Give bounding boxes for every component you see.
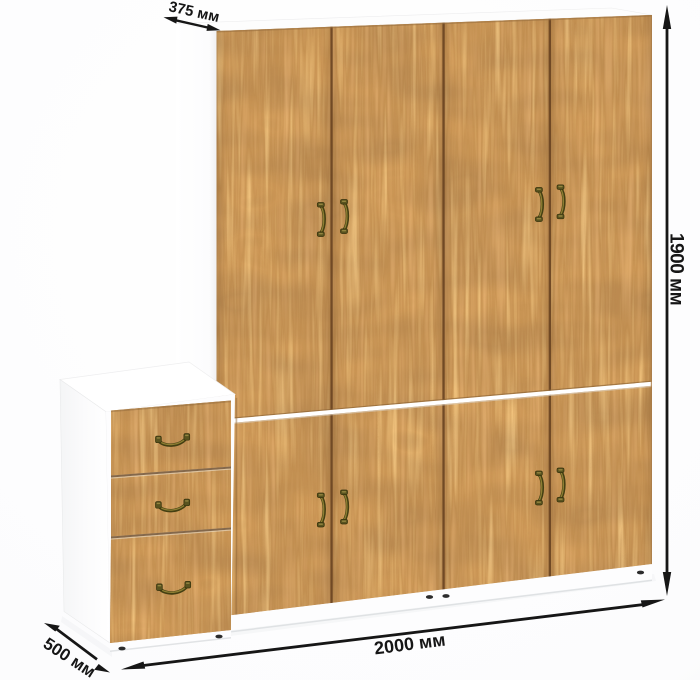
- svg-text:1900 мм: 1900 мм: [666, 233, 687, 305]
